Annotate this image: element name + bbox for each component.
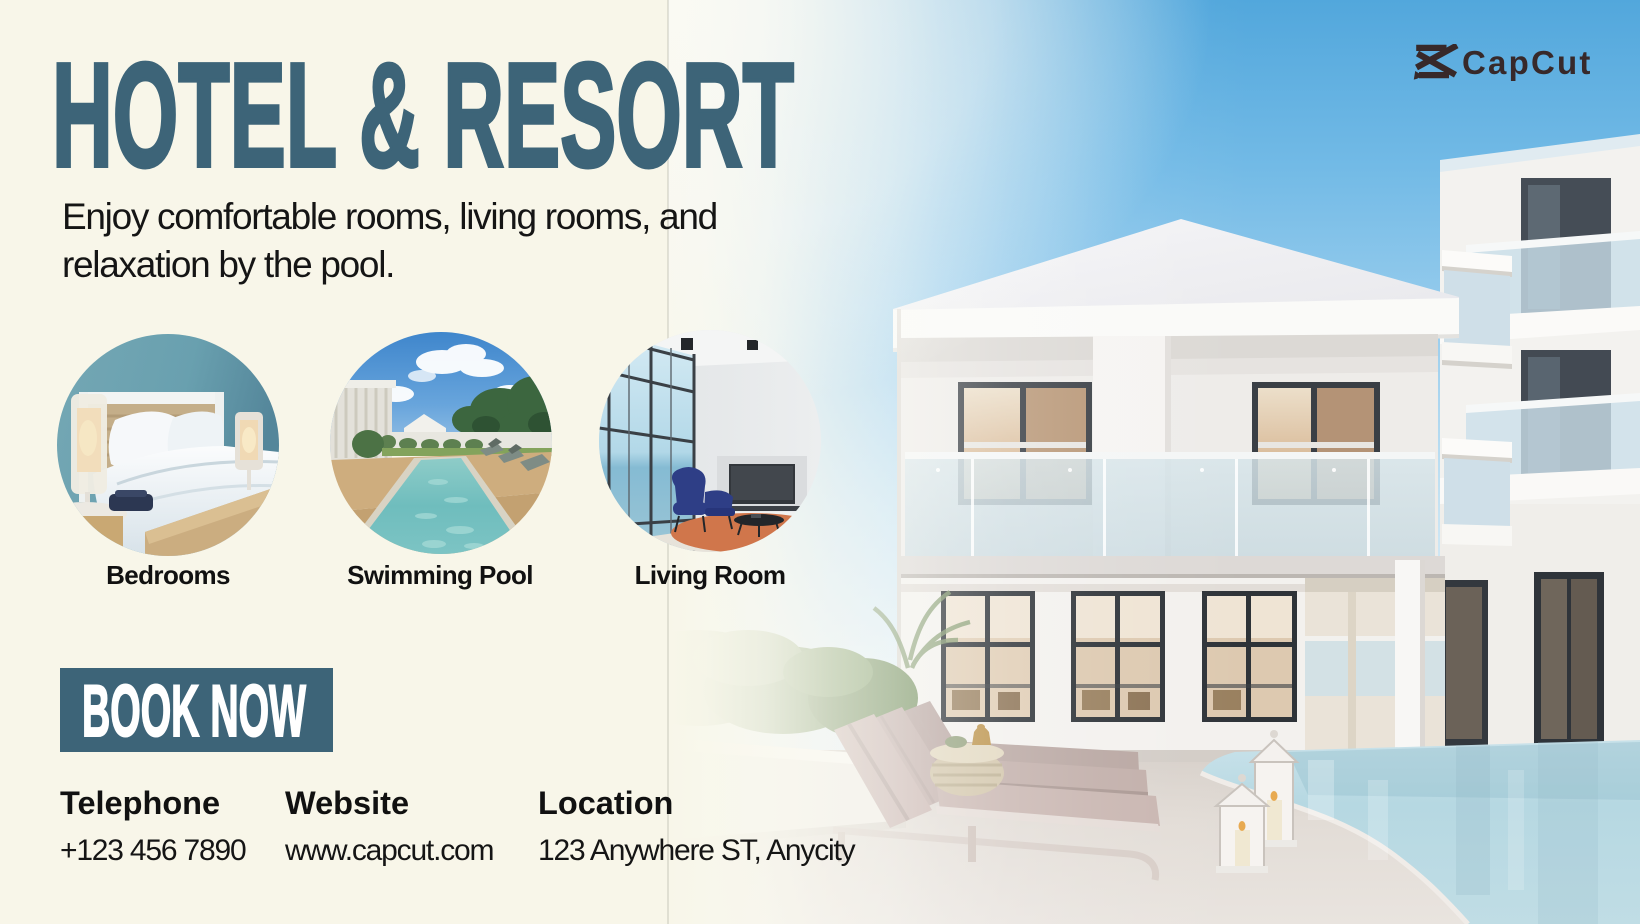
svg-text:BOOK NOW: BOOK NOW <box>82 671 306 752</box>
svg-text:HOTEL & RESORT: HOTEL & RESORT <box>55 56 794 176</box>
